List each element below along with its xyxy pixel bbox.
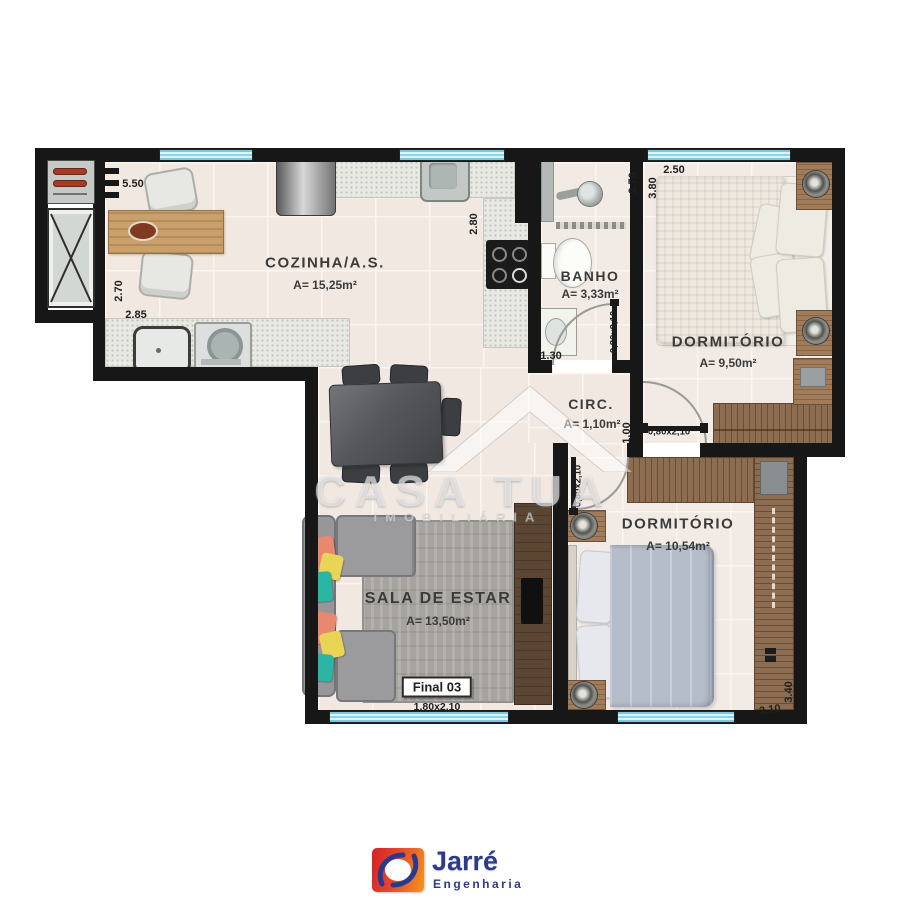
logo-tagline: Engenharia	[433, 877, 523, 891]
window-sala	[330, 712, 508, 722]
wardrobe-handle	[765, 656, 776, 662]
bed2-blanket	[610, 545, 714, 707]
dimension-dorm2-right: 3.40	[783, 681, 795, 702]
dimension-kitchen-left-lower: 2.85	[125, 309, 146, 321]
grill-skewer	[53, 168, 87, 175]
room-area-cozinha: A= 15,25m²	[293, 278, 357, 292]
room-area-dormitorio1: A= 9,50m²	[699, 356, 756, 370]
grill-skewer	[53, 180, 87, 187]
vent-mark	[103, 168, 119, 174]
dimension-circ-right: 1.00	[621, 422, 633, 443]
room-area-sala: A= 13,50m²	[406, 614, 470, 628]
shower-head-icon	[578, 182, 602, 206]
dining-chair	[440, 398, 462, 437]
window	[400, 150, 504, 160]
dimension-kitchen-top: 5.50	[122, 178, 143, 190]
nightstand-lamp	[571, 513, 597, 539]
nightstand-lamp	[803, 171, 829, 197]
grill-rack-line	[53, 193, 87, 195]
wardrobe-accessory	[760, 461, 788, 495]
dresser-items	[800, 367, 826, 387]
door-cap	[700, 423, 708, 433]
nightstand-lamp	[571, 682, 597, 708]
stove-burner	[512, 268, 527, 283]
sofa-seat	[336, 630, 396, 702]
kitchen-chair	[138, 249, 195, 300]
door-cap	[569, 508, 578, 515]
logo-swirl-icon	[372, 848, 424, 892]
dimension-banho-bottom: 1.30	[540, 350, 561, 362]
window	[618, 712, 734, 722]
stove-burner	[492, 247, 507, 262]
door-size-dorm1: 0,80x2,10	[648, 427, 690, 438]
circ-floor-doorway	[568, 443, 627, 457]
room-area-circ: A= 1,10m²	[563, 417, 620, 431]
nightstand-lamp	[803, 318, 829, 344]
wall	[700, 443, 845, 457]
wall	[515, 148, 541, 223]
wall	[528, 223, 541, 363]
bedroom2-wardrobe-top	[627, 457, 757, 503]
wall	[627, 443, 643, 457]
unit-label: Final 03	[402, 677, 472, 698]
room-label-dormitorio2: DORMITÓRIO	[622, 516, 735, 533]
room-area-dormitorio2: A= 10,54m²	[646, 539, 710, 553]
door-cap	[640, 423, 648, 433]
dining-table	[329, 381, 444, 467]
dimension-kitchen-left-upper: 2.70	[113, 280, 125, 301]
bath-niche	[556, 222, 626, 229]
room-label-banho: BANHO	[561, 268, 620, 284]
dining-chair	[390, 462, 429, 484]
tv-screen	[521, 578, 543, 624]
wall	[553, 443, 568, 724]
table-bowl	[128, 221, 158, 241]
wardrobe-rod	[772, 508, 775, 608]
laundry-sink-drain	[156, 348, 161, 353]
company-logo	[372, 848, 424, 892]
room-label-circ: CIRC.	[568, 396, 614, 412]
dimension-kitchen-right: 2.80	[468, 213, 480, 234]
sofa-chaise	[336, 515, 416, 577]
wall	[832, 148, 845, 457]
room-area-banho: A= 3,33m²	[561, 287, 618, 301]
breakfast-table	[108, 210, 224, 254]
dimension-banho-right: 2.70	[627, 172, 639, 193]
kitchen-sink-basin	[429, 163, 457, 189]
shower-partition	[541, 158, 554, 222]
window	[160, 150, 252, 160]
window	[648, 150, 790, 160]
room-label-dormitorio1: DORMITÓRIO	[672, 334, 785, 351]
door-size-banho: 0,80x2,10	[609, 311, 620, 353]
wardrobe-handle	[765, 648, 776, 654]
elevator-shaft	[47, 208, 95, 308]
wall	[93, 367, 318, 381]
room-label-sala: SALA DE ESTAR	[365, 590, 512, 608]
logo-name: Jarré	[432, 846, 498, 877]
window-size-sala: 1,80x2,10	[414, 701, 461, 713]
door-size-dorm2: 0,80x2,10	[573, 465, 584, 507]
wall	[794, 450, 807, 724]
floor-plan-page: COZINHA/A.S. A= 15,25m² BANHO A= 3,33m² …	[0, 0, 900, 900]
washer-panel	[201, 359, 241, 365]
room-label-cozinha: COZINHA/A.S.	[265, 255, 385, 272]
vent-mark	[103, 192, 119, 198]
stove-burner	[492, 268, 507, 283]
vent-mark	[103, 180, 119, 186]
stove-burner	[512, 247, 527, 262]
dimension-dorm1-left: 3.80	[647, 177, 659, 198]
dimension-dorm1-top: 2.50	[663, 164, 684, 176]
wall	[305, 367, 318, 724]
shaft-x-icon	[47, 208, 95, 308]
